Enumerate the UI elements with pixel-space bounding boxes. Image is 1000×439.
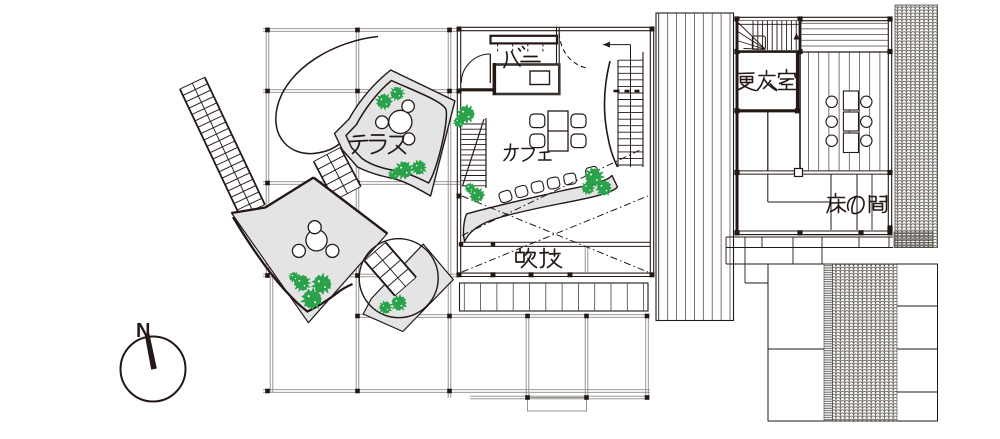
svg-text:N: N: [136, 320, 150, 342]
